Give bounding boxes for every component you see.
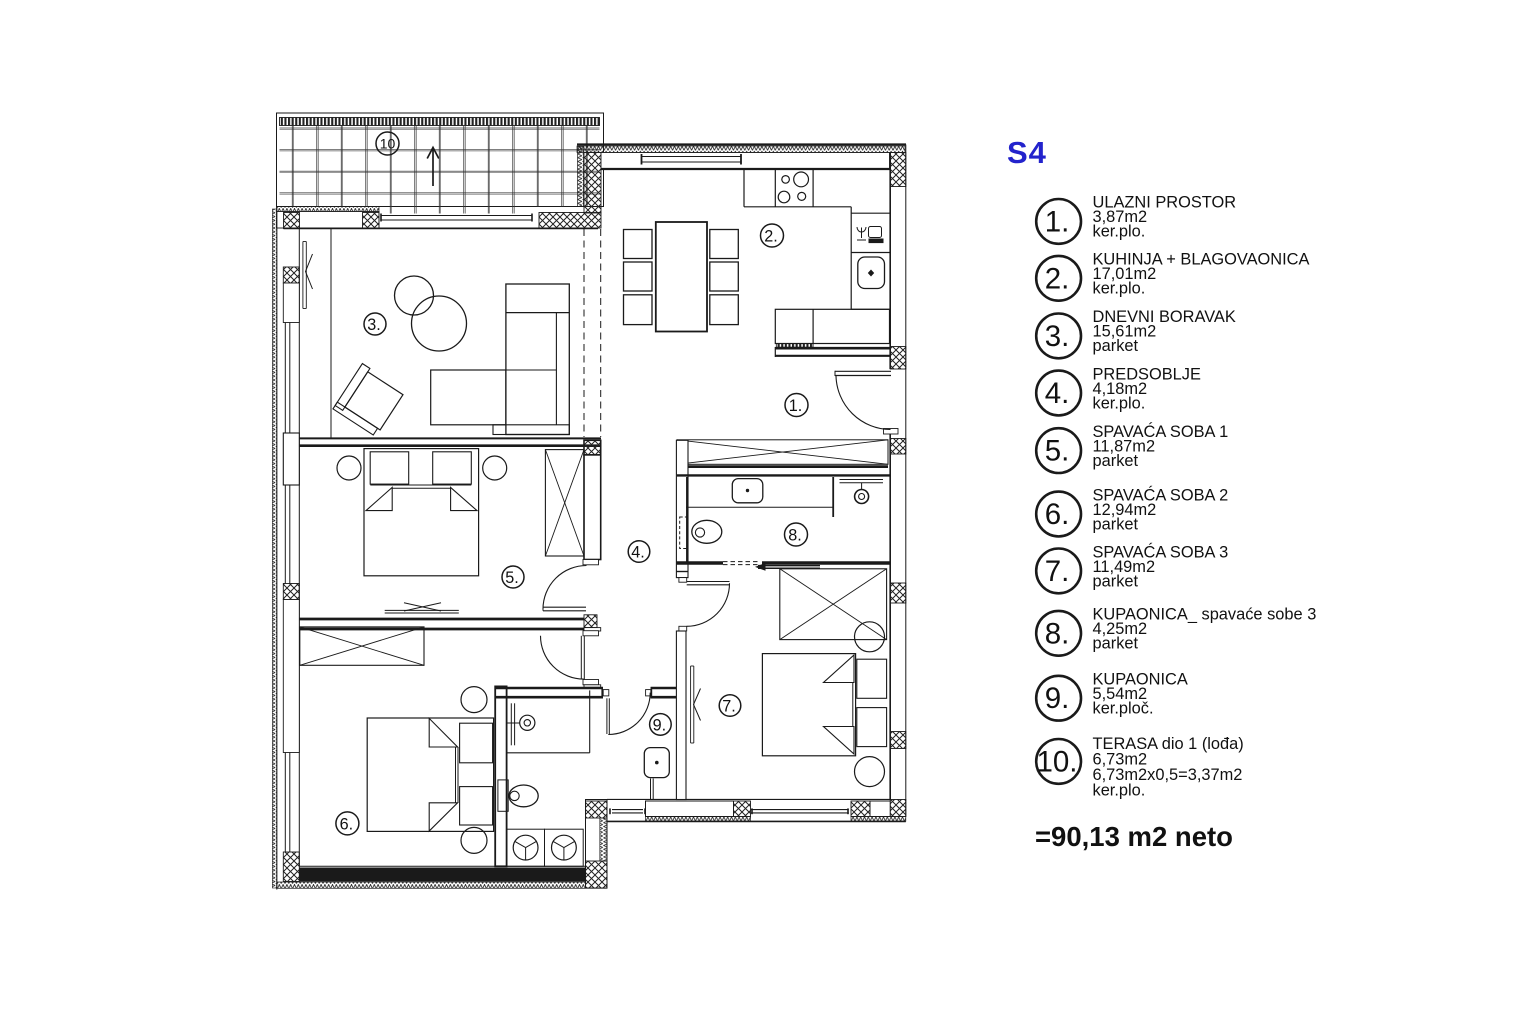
svg-text:5.: 5. bbox=[1045, 435, 1070, 468]
svg-text:=90,13 m2 neto: =90,13 m2 neto bbox=[1035, 821, 1233, 852]
svg-text:6.: 6. bbox=[1045, 498, 1070, 531]
svg-text:parket: parket bbox=[1093, 337, 1139, 355]
svg-text:6.: 6. bbox=[340, 815, 354, 833]
svg-text:10.: 10. bbox=[1036, 745, 1077, 778]
svg-text:7.: 7. bbox=[1045, 555, 1070, 588]
svg-text:parket: parket bbox=[1093, 572, 1139, 590]
svg-text:9.: 9. bbox=[1045, 682, 1070, 715]
svg-text:ker.plo.: ker.plo. bbox=[1093, 394, 1146, 412]
svg-text:10: 10 bbox=[380, 136, 396, 152]
svg-text:2.: 2. bbox=[764, 228, 778, 246]
svg-text:parket: parket bbox=[1093, 515, 1139, 533]
svg-text:parket: parket bbox=[1093, 635, 1139, 653]
svg-text:ker.plo.: ker.plo. bbox=[1093, 280, 1146, 298]
svg-text:parket: parket bbox=[1093, 452, 1139, 470]
svg-text:3.: 3. bbox=[367, 316, 381, 334]
svg-text:ker.plo.: ker.plo. bbox=[1093, 223, 1146, 241]
svg-text:5.: 5. bbox=[505, 569, 519, 587]
svg-text:7.: 7. bbox=[722, 698, 736, 716]
svg-text:1.: 1. bbox=[1045, 205, 1070, 238]
svg-text:8.: 8. bbox=[788, 527, 802, 545]
svg-text:ker.plo.: ker.plo. bbox=[1093, 782, 1146, 800]
svg-text:4.: 4. bbox=[1045, 377, 1070, 410]
svg-text:3.: 3. bbox=[1045, 320, 1070, 353]
svg-text:8.: 8. bbox=[1045, 617, 1070, 650]
svg-text:S4: S4 bbox=[1007, 135, 1047, 170]
svg-text:1.: 1. bbox=[789, 397, 803, 415]
svg-text:9.: 9. bbox=[653, 716, 667, 734]
svg-text:2.: 2. bbox=[1045, 262, 1070, 295]
svg-text:ker.ploč.: ker.ploč. bbox=[1093, 700, 1154, 718]
svg-text:4.: 4. bbox=[631, 544, 645, 562]
